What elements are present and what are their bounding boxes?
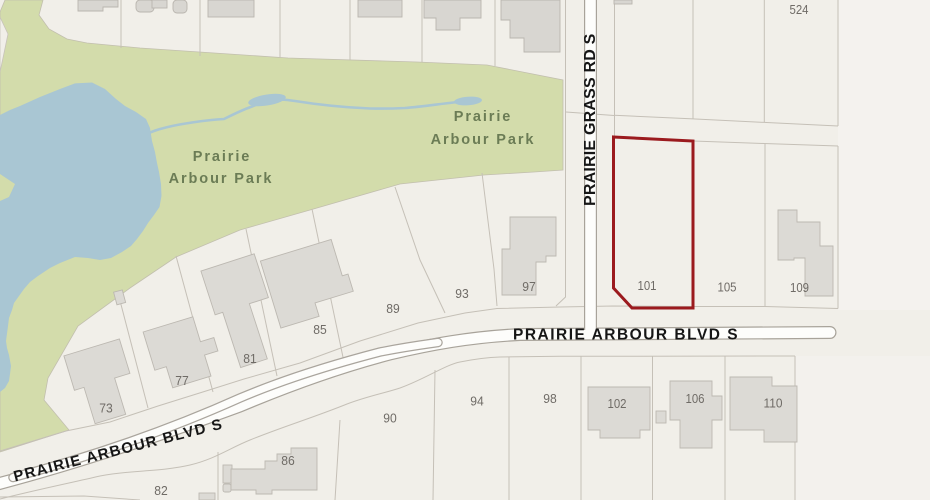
- svg-text:Arbour Park: Arbour Park: [431, 132, 536, 148]
- svg-text:102: 102: [608, 396, 627, 411]
- svg-text:97: 97: [522, 279, 536, 294]
- svg-text:524: 524: [790, 2, 809, 17]
- svg-text:Prairie: Prairie: [193, 149, 251, 165]
- svg-text:101: 101: [638, 278, 657, 293]
- svg-text:Arbour Park: Arbour Park: [169, 171, 274, 187]
- svg-text:90: 90: [383, 411, 397, 426]
- svg-text:110: 110: [764, 396, 783, 411]
- svg-text:77: 77: [175, 373, 189, 388]
- svg-text:93: 93: [455, 286, 469, 301]
- svg-text:105: 105: [718, 280, 737, 295]
- svg-text:89: 89: [386, 301, 400, 316]
- svg-text:85: 85: [313, 322, 327, 337]
- svg-text:PRAIRIE GRASS RD S: PRAIRIE GRASS RD S: [582, 33, 599, 206]
- svg-text:73: 73: [99, 401, 113, 416]
- svg-text:86: 86: [281, 453, 295, 468]
- svg-text:106: 106: [686, 391, 705, 406]
- svg-text:98: 98: [543, 391, 557, 406]
- svg-text:Prairie: Prairie: [454, 109, 512, 125]
- svg-text:109: 109: [790, 280, 809, 295]
- svg-text:94: 94: [470, 394, 484, 409]
- svg-text:81: 81: [243, 351, 257, 366]
- svg-text:PRAIRIE ARBOUR BLVD S: PRAIRIE ARBOUR BLVD S: [513, 327, 739, 344]
- svg-text:82: 82: [154, 483, 168, 498]
